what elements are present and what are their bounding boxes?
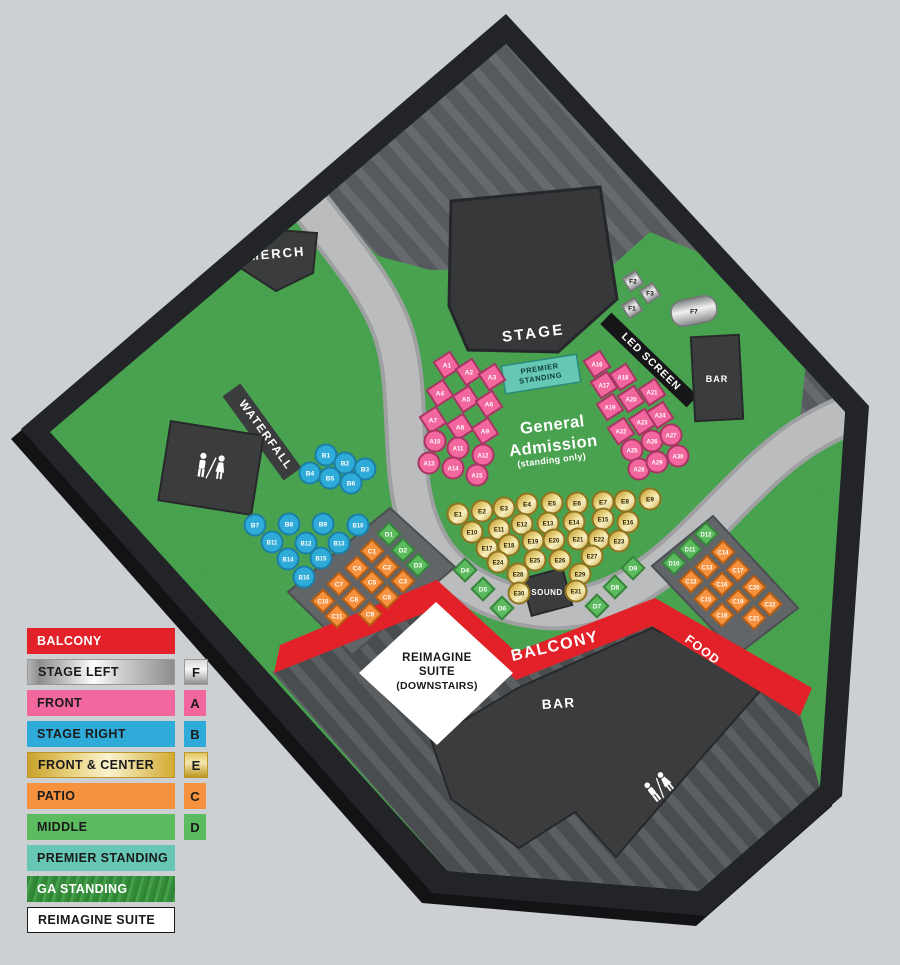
legend-row-premier-standing: PREMIER STANDING [27, 845, 242, 871]
table-label: B13 [333, 541, 345, 547]
table-label: C11 [332, 614, 343, 620]
table-label: E28 [513, 572, 524, 578]
table-E3[interactable]: E3 [494, 498, 515, 519]
table-label: C22 [764, 602, 776, 608]
legend-row-patio: PATIOC [27, 783, 242, 809]
table-label: A16 [591, 362, 603, 368]
table-label: A11 [453, 446, 464, 452]
table-label: B9 [319, 521, 328, 528]
table-B8[interactable]: B8 [279, 514, 300, 535]
table-label: A5 [462, 396, 471, 403]
table-label: E21 [573, 537, 584, 543]
legend-badge: A [184, 690, 206, 716]
table-label: C1 [368, 548, 377, 555]
legend-badge: C [184, 783, 206, 809]
table-label: A9 [481, 428, 490, 435]
table-label: A7 [429, 417, 438, 424]
table-label: E19 [528, 539, 539, 545]
table-label: E24 [493, 560, 504, 566]
table-label: C5 [368, 579, 377, 586]
table-B16[interactable]: B16 [294, 567, 315, 588]
table-label: E17 [482, 546, 493, 552]
table-label: C17 [732, 568, 744, 574]
table-B9[interactable]: B9 [313, 514, 334, 535]
table-E10[interactable]: E10 [462, 522, 483, 543]
table-label: C21 [748, 616, 760, 622]
table-E24[interactable]: E24 [488, 552, 509, 573]
table-label: E15 [598, 517, 609, 523]
table-label: A24 [654, 413, 666, 419]
table-label: A19 [604, 405, 616, 411]
table-E23[interactable]: E23 [609, 531, 630, 552]
table-E28[interactable]: E28 [508, 564, 529, 585]
table-label: A22 [615, 429, 627, 435]
legend-swatch: BALCONY [27, 628, 175, 654]
table-B10[interactable]: B10 [348, 515, 369, 536]
table-A30[interactable]: A30 [668, 446, 689, 467]
label-bar-lower: BAR [541, 695, 576, 712]
table-label: F2 [629, 278, 637, 285]
table-label: E1 [454, 511, 462, 518]
table-label: D1 [385, 531, 394, 538]
table-label: A6 [485, 401, 494, 408]
table-B13[interactable]: B13 [329, 533, 350, 554]
table-E6[interactable]: E6 [567, 493, 588, 514]
table-label: D3 [414, 562, 423, 569]
table-label: C2 [383, 564, 392, 571]
table-label: E9 [646, 496, 654, 503]
table-label: A8 [456, 424, 465, 431]
label-reimagine: SUITE [419, 666, 455, 678]
legend-swatch: GA STANDING [27, 876, 175, 902]
table-label: A2 [465, 369, 474, 376]
table-label: C12 [685, 579, 697, 585]
table-B1[interactable]: B1 [316, 445, 337, 466]
table-E4[interactable]: E4 [517, 494, 538, 515]
table-label: C14 [717, 550, 729, 556]
table-label: F3 [646, 290, 654, 297]
table-label: E6 [573, 500, 581, 507]
table-E19[interactable]: E19 [523, 531, 544, 552]
table-label: C4 [353, 565, 362, 572]
table-label: C9 [366, 611, 375, 618]
legend-badge: F [184, 659, 208, 685]
table-label: D8 [611, 584, 620, 591]
table-label: D9 [629, 565, 638, 572]
table-label: C16 [716, 582, 728, 588]
table-label: B7 [251, 522, 260, 529]
table-label: A12 [477, 453, 489, 459]
table-E2[interactable]: E2 [472, 501, 493, 522]
legend-swatch: MIDDLE [27, 814, 175, 840]
table-label: E5 [548, 500, 556, 507]
table-label: B15 [315, 556, 327, 562]
table-label: A21 [646, 390, 658, 396]
table-label: B10 [352, 523, 364, 529]
table-label: D7 [593, 603, 602, 610]
legend-swatch: STAGE RIGHT [27, 721, 175, 747]
table-label: E8 [621, 498, 629, 505]
table-label: A27 [665, 433, 677, 439]
table-label: C15 [700, 597, 712, 603]
table-E26[interactable]: E26 [550, 550, 571, 571]
legend-swatch: PREMIER STANDING [27, 845, 175, 871]
table-label: E22 [594, 537, 605, 543]
table-label: A10 [429, 439, 441, 445]
table-E15[interactable]: E15 [593, 509, 614, 530]
table-label: E4 [523, 501, 531, 508]
table-label: A26 [646, 439, 658, 445]
legend-swatch: FRONT [27, 690, 175, 716]
table-B6[interactable]: B6 [341, 473, 362, 494]
table-label: C10 [317, 599, 329, 605]
table-label: E10 [467, 530, 478, 536]
table-A25[interactable]: A25 [622, 440, 643, 461]
table-label: A1 [443, 362, 452, 369]
table-label: E14 [569, 520, 580, 526]
table-label: B16 [298, 575, 310, 581]
table-A27[interactable]: A27 [661, 425, 682, 446]
legend: BALCONY STAGE LEFTF FRONTA STAGE RIGHTB … [27, 628, 242, 938]
table-label: B12 [300, 541, 312, 547]
legend-row-middle: MIDDLED [27, 814, 242, 840]
table-E21[interactable]: E21 [568, 529, 589, 550]
table-label: D6 [498, 605, 507, 612]
table-label: A29 [651, 460, 663, 466]
legend-badge: E [184, 752, 208, 778]
table-label: A3 [488, 374, 497, 381]
venue-seating-map: A1A2A3A4A5A6A7A8A9A10A11A12A13A14A15A16A… [0, 0, 900, 965]
table-label: B14 [282, 557, 294, 563]
table-A13[interactable]: A13 [419, 453, 440, 474]
table-label: B8 [285, 521, 294, 528]
table-label: C7 [335, 581, 344, 588]
table-E30[interactable]: E30 [509, 583, 530, 604]
legend-row-ga-standing: GA STANDING [27, 876, 242, 902]
label-reimagine: (DOWNSTAIRS) [396, 680, 478, 692]
table-label: D4 [461, 567, 470, 574]
table-label: E2 [478, 508, 486, 515]
table-E31[interactable]: E31 [566, 581, 587, 602]
table-label: C13 [701, 565, 713, 571]
legend-row-stage-left: STAGE LEFTF [27, 659, 242, 685]
table-label: E31 [571, 589, 582, 595]
table-label: E20 [549, 538, 560, 544]
table-label: E30 [514, 591, 525, 597]
table-label: D12 [700, 532, 712, 538]
table-B7[interactable]: B7 [245, 515, 266, 536]
table-B11[interactable]: B11 [262, 532, 283, 553]
table-label: A23 [636, 420, 648, 426]
table-label: F1 [628, 305, 636, 312]
table-label: E25 [530, 558, 541, 564]
table-label: A30 [672, 454, 684, 460]
table-E9[interactable]: E9 [640, 489, 661, 510]
table-label: C6 [383, 594, 392, 601]
table-label: E16 [623, 520, 634, 526]
table-A10[interactable]: A10 [425, 431, 446, 452]
legend-row-balcony: BALCONY [27, 628, 242, 654]
table-label: E12 [517, 522, 528, 528]
table-label: D10 [668, 561, 680, 567]
table-label: E23 [614, 539, 625, 545]
table-label: C19 [732, 599, 744, 605]
table-label: A15 [471, 473, 483, 479]
table-label: D2 [399, 547, 408, 554]
table-label: A4 [436, 390, 445, 397]
table-label: A28 [633, 467, 645, 473]
legend-swatch: FRONT & CENTER [27, 752, 175, 778]
table-label: E3 [500, 505, 508, 512]
table-E5[interactable]: E5 [542, 493, 563, 514]
table-A26[interactable]: A26 [642, 431, 663, 452]
legend-row-stage-right: STAGE RIGHTB [27, 721, 242, 747]
label-bar-upper: BAR [706, 374, 729, 384]
table-A29[interactable]: A29 [647, 452, 668, 473]
table-label: A18 [617, 375, 629, 381]
table-label: B5 [326, 475, 335, 482]
table-label: E29 [575, 572, 586, 578]
label-reimagine: REIMAGINE [402, 652, 472, 664]
table-label: C20 [748, 585, 760, 591]
table-label: E11 [494, 527, 505, 533]
table-label: B4 [306, 470, 315, 477]
table-label: E26 [555, 558, 566, 564]
table-label: E13 [543, 521, 554, 527]
table-B15[interactable]: B15 [311, 548, 332, 569]
table-label: E18 [504, 543, 515, 549]
legend-badge: B [184, 721, 206, 747]
table-label: A13 [423, 461, 435, 467]
table-label: C3 [399, 578, 408, 585]
legend-row-front-center: FRONT & CENTERE [27, 752, 242, 778]
table-label: C8 [350, 596, 359, 603]
legend-swatch: PATIO [27, 783, 175, 809]
legend-row-reimagine-suite: REIMAGINE SUITE [27, 907, 242, 933]
table-A11[interactable]: A11 [448, 438, 469, 459]
table-label: A25 [626, 448, 638, 454]
table-B5[interactable]: B5 [320, 468, 341, 489]
label-sound: SOUND [531, 588, 562, 597]
table-E20[interactable]: E20 [544, 530, 565, 551]
table-E16[interactable]: E16 [618, 512, 639, 533]
table-A14[interactable]: A14 [443, 458, 464, 479]
table-E1[interactable]: E1 [448, 504, 469, 525]
table-E27[interactable]: E27 [582, 546, 603, 567]
table-label: A20 [625, 397, 637, 403]
table-label: F7 [690, 308, 698, 315]
table-label: E7 [599, 499, 607, 506]
table-label: B1 [322, 452, 331, 459]
legend-row-front: FRONTA [27, 690, 242, 716]
table-E8[interactable]: E8 [615, 491, 636, 512]
table-E25[interactable]: E25 [525, 550, 546, 571]
table-label: B3 [361, 466, 370, 473]
table-B4[interactable]: B4 [300, 463, 321, 484]
table-B14[interactable]: B14 [278, 549, 299, 570]
table-label: B11 [267, 540, 278, 546]
table-label: B6 [347, 480, 356, 487]
table-label: D11 [685, 547, 696, 553]
table-label: A17 [598, 383, 610, 389]
table-A15[interactable]: A15 [467, 465, 488, 486]
table-label: C18 [716, 613, 728, 619]
table-label: D5 [479, 586, 488, 593]
table-label: A14 [447, 466, 459, 472]
table-label: E27 [587, 554, 598, 560]
legend-badge: D [184, 814, 206, 840]
table-label: B2 [341, 460, 350, 467]
table-A12[interactable]: A12 [473, 445, 494, 466]
legend-swatch: STAGE LEFT [27, 659, 175, 685]
legend-swatch: REIMAGINE SUITE [27, 907, 175, 933]
